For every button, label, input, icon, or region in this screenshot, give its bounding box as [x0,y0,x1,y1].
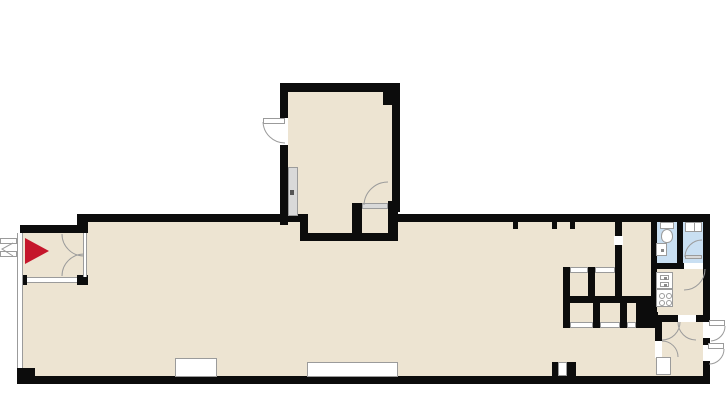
main-top-wall-left [77,214,308,222]
basin-icon [656,243,667,256]
entrance-arrow-icon [25,238,49,264]
wc-door-opening [684,263,703,269]
main-hall-floor [23,233,710,377]
top-wall-stub-1 [513,222,518,229]
bottom-wall-block [567,362,576,384]
toilet-bowl-icon [661,229,673,243]
floor-plan [0,0,726,403]
stall-door-gap-3 [570,322,593,328]
upper-room-corner-pier [383,83,400,105]
window-niche-1 [175,358,217,377]
top-wall-stub-3 [570,222,575,229]
stall-wall-bot-right [620,303,627,328]
exit-door-leaf-2 [708,343,724,349]
door-swing-arc-exit-1 [711,326,725,341]
kitchen-bottom-wall-right [696,315,703,322]
upper-room-exterior-door-leaf [263,118,285,124]
window-niche-2 [307,362,398,377]
stall-door-gap-1 [570,267,588,273]
left-glazed-wall [17,233,23,368]
main-top-wall-right [392,214,710,222]
sliding-door-handle [290,190,294,195]
upper-room-left-wall [280,83,288,225]
service-niche [656,357,671,375]
stall-right-block [636,296,657,328]
exit-door-leaf-1 [709,320,725,326]
interior-wall-door-opening [614,236,623,245]
stall-wall-top-left [563,267,570,303]
upper-room-top-wall [280,83,400,92]
rear-room-left-door-opening [655,341,662,358]
stall-door-gap-2 [595,267,615,273]
toilet-icon [660,222,674,229]
door-swing-arc-exit-2 [709,349,724,364]
bottom-wall-gap [558,362,567,376]
stove-icon [656,289,673,307]
stall-door-gap-4 [600,322,620,328]
interior-wall-lower [615,245,622,268]
top-wall-stub-2 [552,222,557,229]
vestibule-window [27,277,77,283]
tab-bottom-wall [300,233,398,241]
stall-wall-bot-left [563,303,570,328]
stall-wall-bot-mid [593,303,600,328]
rear-room-left-wall [655,321,662,341]
stall-door-gap-5 [627,322,636,328]
bottom-exterior-wall [17,376,710,384]
entrance-door-leaf-2 [0,251,17,257]
vestibule-double-door-jamb [83,233,87,277]
kitchen-door-opening [678,315,696,322]
stall-wall-top-right [615,268,622,303]
wc-door-leaf [685,255,702,259]
wc-divider-wall [677,222,683,263]
kitchen-sink-icon [656,272,673,289]
alcove-door-leaf [362,203,388,209]
entrance-door-leaf-1 [0,238,17,244]
stall-wall-top-mid [588,267,595,303]
vestibule-corner-top [77,214,88,233]
interior-wall-upper [615,222,622,236]
alcove-divider-wall [352,203,362,241]
shower-tray-icon [685,222,702,232]
upper-room-floor [288,91,392,217]
